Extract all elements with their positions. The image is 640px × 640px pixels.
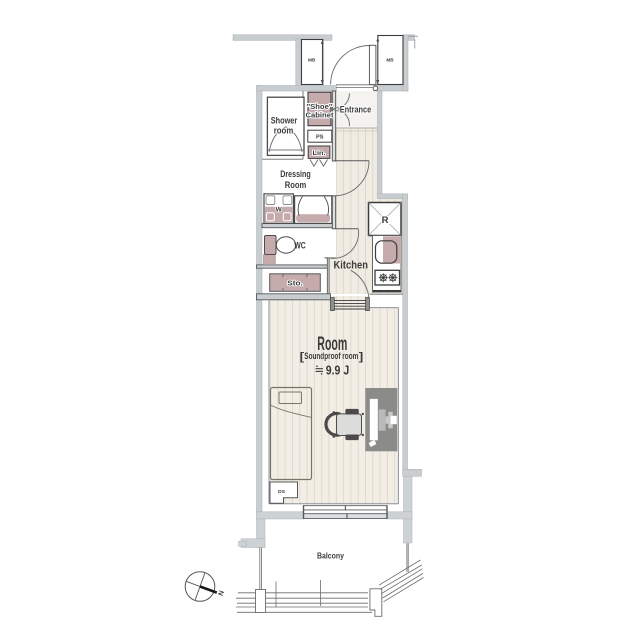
svg-text:W: W: [276, 206, 283, 213]
svg-text:PS: PS: [316, 135, 324, 141]
svg-text:Dressing: Dressing: [280, 169, 311, 180]
svg-text:″Shoe″: ″Shoe″: [307, 104, 334, 111]
svg-text:Balcony: Balcony: [317, 552, 344, 561]
svg-text:DS: DS: [278, 489, 286, 495]
svg-text:MB: MB: [386, 58, 394, 63]
svg-text:WC: WC: [294, 240, 306, 250]
svg-text:Kitchen: Kitchen: [333, 259, 368, 271]
svg-text:]: ]: [359, 351, 364, 363]
svg-text:room: room: [274, 126, 294, 136]
svg-text:Room: Room: [285, 180, 307, 191]
svg-text:Cabinet: Cabinet: [306, 113, 335, 120]
svg-text:Lin.: Lin.: [313, 150, 326, 157]
svg-text:Soundproof room: Soundproof room: [304, 351, 358, 361]
svg-text:R: R: [382, 215, 389, 226]
svg-text:Sto.: Sto.: [287, 280, 303, 287]
svg-text:MB: MB: [308, 58, 316, 63]
svg-text:9.9 J: 9.9 J: [326, 362, 350, 377]
svg-text:Shower: Shower: [271, 115, 298, 125]
svg-text:Entrance: Entrance: [340, 105, 372, 115]
